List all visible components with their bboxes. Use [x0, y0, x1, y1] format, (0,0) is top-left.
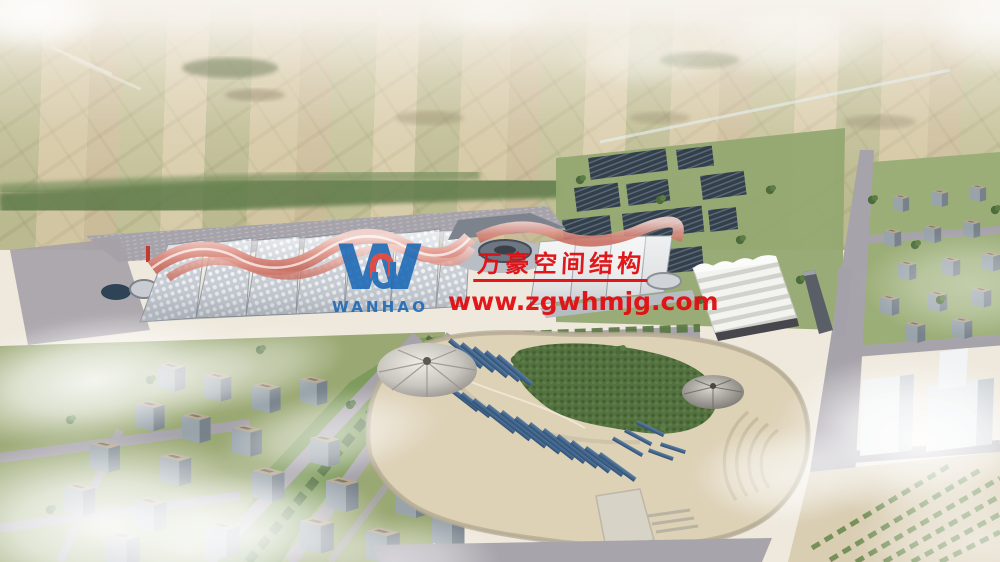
- watermark-website-url: www.zgwhmjg.com: [448, 287, 719, 316]
- cone-tent-left: [377, 343, 477, 397]
- watermark-company-name: 万豪空间结构: [473, 251, 649, 282]
- cone-tent-right: [682, 375, 744, 409]
- logo-w-mark: W: [336, 231, 424, 304]
- distant-details: [51, 46, 950, 142]
- wanhao-logo: W WANHAO: [326, 231, 436, 317]
- red-sculpture: [146, 246, 150, 262]
- greenbelt: [0, 174, 560, 208]
- pond: [101, 284, 131, 300]
- rendering-canvas: W WANHAO 万豪空间结构 www.zgwhmjg.com: [0, 0, 1000, 562]
- logo-wordmark: WANHAO: [332, 298, 428, 316]
